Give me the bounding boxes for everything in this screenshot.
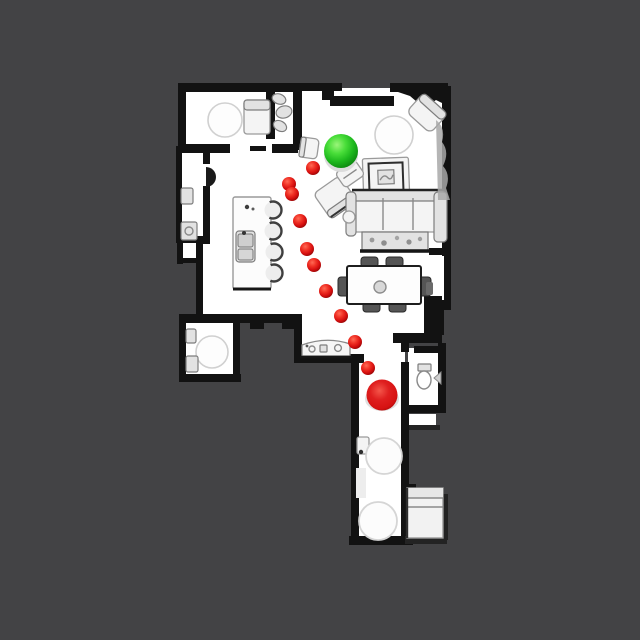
path-waypoint (285, 187, 299, 201)
path-waypoint (348, 335, 362, 349)
table-centerpiece (374, 281, 386, 293)
entry-chair (299, 137, 320, 159)
floor-closet-sliver (408, 414, 436, 425)
sofa-console (360, 232, 430, 252)
floorplan-canvas (0, 0, 640, 640)
stairs (407, 488, 443, 538)
path-waypoint (307, 258, 321, 272)
bath-circle-upper (366, 438, 402, 474)
side-table (343, 211, 355, 223)
kitchen-island (233, 197, 283, 289)
dining-set (338, 257, 431, 312)
start-marker (324, 134, 358, 168)
path-waypoint (319, 284, 333, 298)
screenshot-stage (0, 0, 640, 640)
daybed (244, 100, 270, 134)
path-waypoint (306, 161, 320, 175)
bath-circle-lower (359, 502, 397, 540)
living-round-rug (375, 116, 413, 154)
entry-bench (300, 340, 352, 357)
floor-entry-door-niche (433, 254, 444, 302)
path-waypoint (300, 242, 314, 256)
island-sink (236, 231, 255, 262)
path-waypoint (361, 361, 375, 375)
bedroom-round-rug (208, 103, 242, 137)
path-waypoint (334, 309, 348, 323)
entry-niche-object (426, 282, 433, 295)
goal-marker (367, 380, 398, 411)
path-waypoint (293, 214, 307, 228)
